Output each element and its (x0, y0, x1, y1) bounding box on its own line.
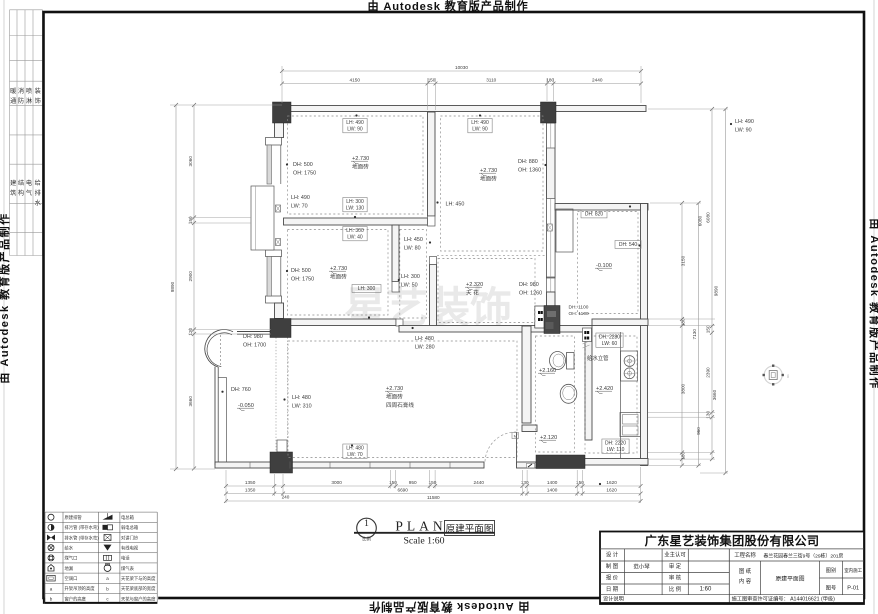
svg-text:业主认可: 业主认可 (664, 551, 686, 559)
svg-text:给水: 给水 (65, 544, 74, 551)
svg-text:960: 960 (696, 427, 701, 435)
svg-text:OH: 1360: OH: 1360 (518, 168, 541, 174)
svg-text:防: 防 (18, 97, 24, 105)
svg-text:广东星艺装饰集团股份有限公司: 广东星艺装饰集团股份有限公司 (645, 533, 820, 548)
svg-text:由 Autodesk 教育版产品制作: 由 Autodesk 教育版产品制作 (0, 212, 11, 383)
svg-text:原建排管: 原建排管 (65, 514, 83, 521)
svg-text:由 Autodesk 教育版产品制作: 由 Autodesk 教育版产品制作 (367, 0, 528, 13)
svg-text:空调口: 空调口 (65, 575, 78, 582)
svg-text:饰: 饰 (35, 97, 41, 105)
svg-text:给: 给 (35, 179, 41, 187)
svg-text:地漏: 地漏 (65, 565, 74, 572)
svg-text:LH: 490: LH: 490 (291, 195, 310, 201)
svg-text:LH: 480: LH: 480 (292, 395, 311, 401)
svg-text:升架吊顶的高度: 升架吊顶的高度 (65, 585, 96, 592)
svg-text:LH: 490: LH: 490 (735, 119, 754, 125)
svg-text:气: 气 (26, 189, 32, 197)
svg-text:K1: K1 (786, 374, 790, 378)
svg-text:LH: 300: LH: 300 (358, 286, 376, 292)
svg-text:地面砖: 地面砖 (386, 393, 403, 401)
svg-text:图别: 图别 (826, 566, 836, 574)
svg-text:3660: 3660 (188, 396, 193, 407)
svg-text:1350: 1350 (245, 488, 256, 493)
svg-text:由 Autodesk 教育版产品制作: 由 Autodesk 教育版产品制作 (368, 600, 529, 614)
svg-text:130: 130 (706, 411, 711, 419)
svg-text:DH: 980: DH: 980 (243, 334, 263, 340)
svg-text:1350: 1350 (245, 480, 256, 485)
svg-text:报 价: 报 价 (606, 573, 619, 581)
svg-text:6080: 6080 (698, 215, 703, 226)
svg-text:OH: 1700: OH: 1700 (243, 343, 266, 349)
svg-text:水: 水 (35, 199, 42, 207)
svg-text:3060: 3060 (188, 156, 193, 167)
svg-text:图号: 图号 (826, 584, 836, 591)
svg-text:DH: 1100: DH: 1100 (569, 305, 589, 311)
svg-text:LW: 40: LW: 40 (347, 234, 363, 240)
svg-text:排: 排 (35, 189, 41, 197)
svg-text:天花与窗户的高度: 天花与窗户的高度 (121, 595, 156, 602)
svg-text:2390: 2390 (706, 367, 711, 378)
svg-text:DH: 2280: DH: 2280 (599, 334, 620, 340)
svg-text:比 例: 比 例 (669, 585, 681, 593)
svg-text:消: 消 (18, 87, 24, 95)
svg-text:制 图: 制 图 (606, 562, 618, 570)
svg-text:OH: 1100: OH: 1100 (569, 311, 590, 317)
svg-text:由 Autodesk 教育版产品制作: 由 Autodesk 教育版产品制作 (868, 218, 878, 389)
svg-text:地面砖: 地面砖 (352, 163, 369, 171)
svg-text:150: 150 (706, 325, 711, 333)
svg-text:950: 950 (409, 480, 417, 485)
svg-text:电话: 电话 (121, 555, 130, 562)
svg-text:DH: 880: DH: 880 (518, 159, 538, 165)
svg-text:通: 通 (10, 97, 16, 105)
svg-text:LW: 310: LW: 310 (292, 404, 312, 410)
svg-text:地面砖: 地面砖 (480, 175, 497, 183)
svg-text:2900: 2900 (188, 271, 193, 282)
svg-text:LW: 80: LW: 80 (404, 246, 421, 252)
svg-text:煤气口: 煤气口 (65, 555, 78, 562)
svg-text:设 计: 设 计 (606, 551, 619, 559)
svg-text:给水立管: 给水立管 (587, 354, 609, 362)
svg-text:天花梁底部的宽度: 天花梁底部的宽度 (121, 585, 156, 592)
svg-text:施工图审查许可证编号： A144016621 (甲级): 施工图审查许可证编号： A144016621 (甲级) (732, 594, 835, 602)
svg-text:3660: 3660 (712, 389, 717, 400)
svg-text:LW: 60: LW: 60 (602, 341, 618, 347)
svg-text:4150: 4150 (350, 78, 361, 83)
svg-text:DH: 500: DH: 500 (291, 268, 311, 274)
svg-text:LH: 490: LH: 490 (346, 120, 364, 126)
svg-text:1620: 1620 (606, 480, 617, 485)
svg-text:2440: 2440 (592, 78, 603, 83)
svg-text:3110: 3110 (486, 78, 496, 83)
svg-text:6690: 6690 (397, 488, 408, 493)
svg-text:M: M (514, 433, 517, 438)
svg-text:LH: 480: LH: 480 (415, 336, 434, 342)
svg-text:LH: 300: LH: 300 (346, 199, 364, 205)
svg-text:LW: 70: LW: 70 (347, 452, 363, 458)
svg-text:OH: 1750: OH: 1750 (293, 171, 316, 177)
svg-text:排污管 (带存水弯): 排污管 (带存水弯) (65, 524, 100, 531)
svg-text:LW: 70: LW: 70 (291, 204, 308, 210)
svg-text:DH: 760: DH: 760 (231, 387, 251, 393)
svg-text:LH: 450: LH: 450 (404, 237, 423, 243)
svg-text:LW: 280: LW: 280 (415, 345, 435, 351)
svg-text:室内施工: 室内施工 (844, 567, 862, 574)
svg-text:LW: 90: LW: 90 (735, 128, 752, 134)
svg-text:DH: 2220: DH: 2220 (605, 440, 626, 446)
svg-text:范小琴: 范小琴 (633, 562, 650, 570)
svg-text:9890: 9890 (170, 281, 175, 292)
svg-text:天花梁下与的高度: 天花梁下与的高度 (121, 575, 156, 582)
svg-text:9890: 9890 (714, 285, 719, 296)
svg-text:LH: 480: LH: 480 (346, 445, 364, 451)
svg-text:天 花: 天 花 (466, 289, 479, 297)
svg-text:电: 电 (26, 179, 32, 187)
svg-text:图 纸: 图 纸 (739, 567, 752, 575)
svg-text:有线电视: 有线电视 (121, 544, 139, 551)
svg-text:1400: 1400 (547, 480, 558, 485)
svg-text:审 核: 审 核 (669, 573, 682, 581)
svg-text:原建平面图: 原建平面图 (446, 523, 494, 535)
svg-text:构: 构 (18, 189, 24, 197)
svg-text:结: 结 (18, 179, 24, 187)
svg-text:DH: 980: DH: 980 (519, 282, 539, 288)
svg-text:工程名称: 工程名称 (734, 551, 756, 559)
svg-text:春兰花园春兰三街9号（29栋）201房: 春兰花园春兰三街9号（29栋）201房 (764, 553, 844, 560)
svg-text:3000: 3000 (331, 480, 342, 485)
svg-text:设计说明: 设计说明 (603, 595, 624, 603)
svg-text:内 容: 内 容 (739, 577, 752, 585)
svg-text:LH: 450: LH: 450 (446, 202, 465, 208)
svg-text:PLAN: PLAN (395, 519, 446, 534)
svg-text:120: 120 (188, 327, 193, 335)
svg-text:1400: 1400 (547, 488, 558, 493)
svg-text:LH: 300: LH: 300 (401, 274, 420, 280)
svg-text:1:60: 1:60 (700, 587, 712, 593)
svg-text:四周石膏线: 四周石膏线 (386, 401, 414, 409)
svg-text:DH: 820: DH: 820 (585, 211, 604, 217)
svg-text:暖: 暖 (10, 87, 16, 95)
svg-text:180: 180 (681, 318, 686, 326)
svg-text:Scale 1:60: Scale 1:60 (403, 536, 444, 547)
svg-text:150: 150 (428, 78, 436, 83)
svg-text:11580: 11580 (427, 495, 440, 500)
svg-text:地面砖: 地面砖 (330, 273, 347, 281)
svg-text:窗户的高度: 窗户的高度 (65, 595, 87, 602)
svg-text:建: 建 (10, 179, 16, 187)
svg-text:6080: 6080 (706, 212, 711, 223)
svg-text:LW: 90: LW: 90 (347, 126, 363, 132)
svg-text:3800: 3800 (681, 383, 686, 394)
svg-text:排水管 (带存水弯): 排水管 (带存水弯) (65, 534, 100, 541)
svg-text:OH: 1260: OH: 1260 (519, 291, 542, 297)
svg-text:弱电总箱: 弱电总箱 (121, 524, 139, 531)
svg-text:3150: 3150 (681, 255, 686, 266)
svg-text:筑: 筑 (10, 189, 17, 197)
svg-text:1620: 1620 (606, 488, 617, 493)
svg-text:10030: 10030 (455, 65, 468, 70)
svg-text:电总箱: 电总箱 (121, 514, 135, 521)
svg-text:喷: 喷 (26, 87, 32, 95)
svg-text:审 定: 审 定 (669, 562, 682, 570)
svg-text:DH: 500: DH: 500 (293, 162, 313, 168)
svg-text:原建平面图: 原建平面图 (776, 574, 805, 582)
svg-text:LH: 490: LH: 490 (471, 120, 489, 126)
svg-text:对讲门铃: 对讲门铃 (121, 534, 139, 541)
svg-text:P-01: P-01 (847, 585, 859, 591)
svg-text:淋: 淋 (26, 97, 32, 105)
svg-text:LW: 110: LW: 110 (607, 447, 625, 453)
svg-text:装: 装 (35, 87, 41, 95)
svg-text:LW: 130: LW: 130 (346, 205, 364, 211)
svg-text:OH: 1750: OH: 1750 (291, 277, 314, 283)
svg-text:煤气表: 煤气表 (121, 565, 135, 572)
svg-text:LW: 50: LW: 50 (401, 283, 418, 289)
svg-text:2440: 2440 (474, 480, 485, 485)
svg-text:DH: 540: DH: 540 (619, 242, 638, 248)
svg-text:130: 130 (521, 480, 529, 485)
svg-text:比例: 比例 (362, 536, 371, 543)
svg-text:180: 180 (681, 452, 686, 460)
svg-text:LH: 300: LH: 300 (346, 228, 364, 234)
svg-text:7130: 7130 (692, 329, 697, 340)
svg-text:日 期: 日 期 (606, 586, 618, 593)
svg-text:LW: 90: LW: 90 (472, 126, 488, 132)
svg-text:1: 1 (364, 519, 369, 529)
